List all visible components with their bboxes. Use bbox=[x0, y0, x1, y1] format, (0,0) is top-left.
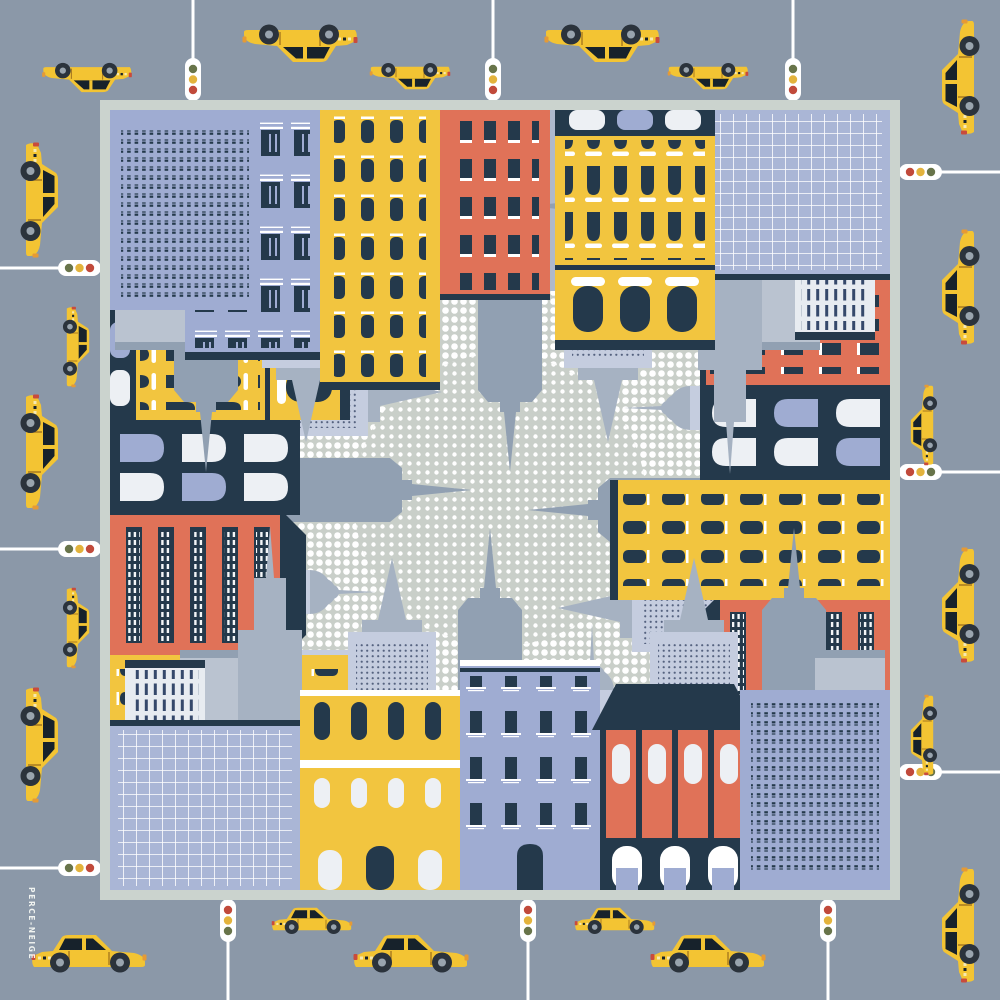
city-frame bbox=[100, 100, 900, 900]
scarf-canvas: PERCE-NEIGE bbox=[0, 0, 1000, 1000]
brand-label: PERCE-NEIGE bbox=[27, 887, 36, 960]
scarf-artwork: PERCE-NEIGE bbox=[0, 0, 1000, 1000]
